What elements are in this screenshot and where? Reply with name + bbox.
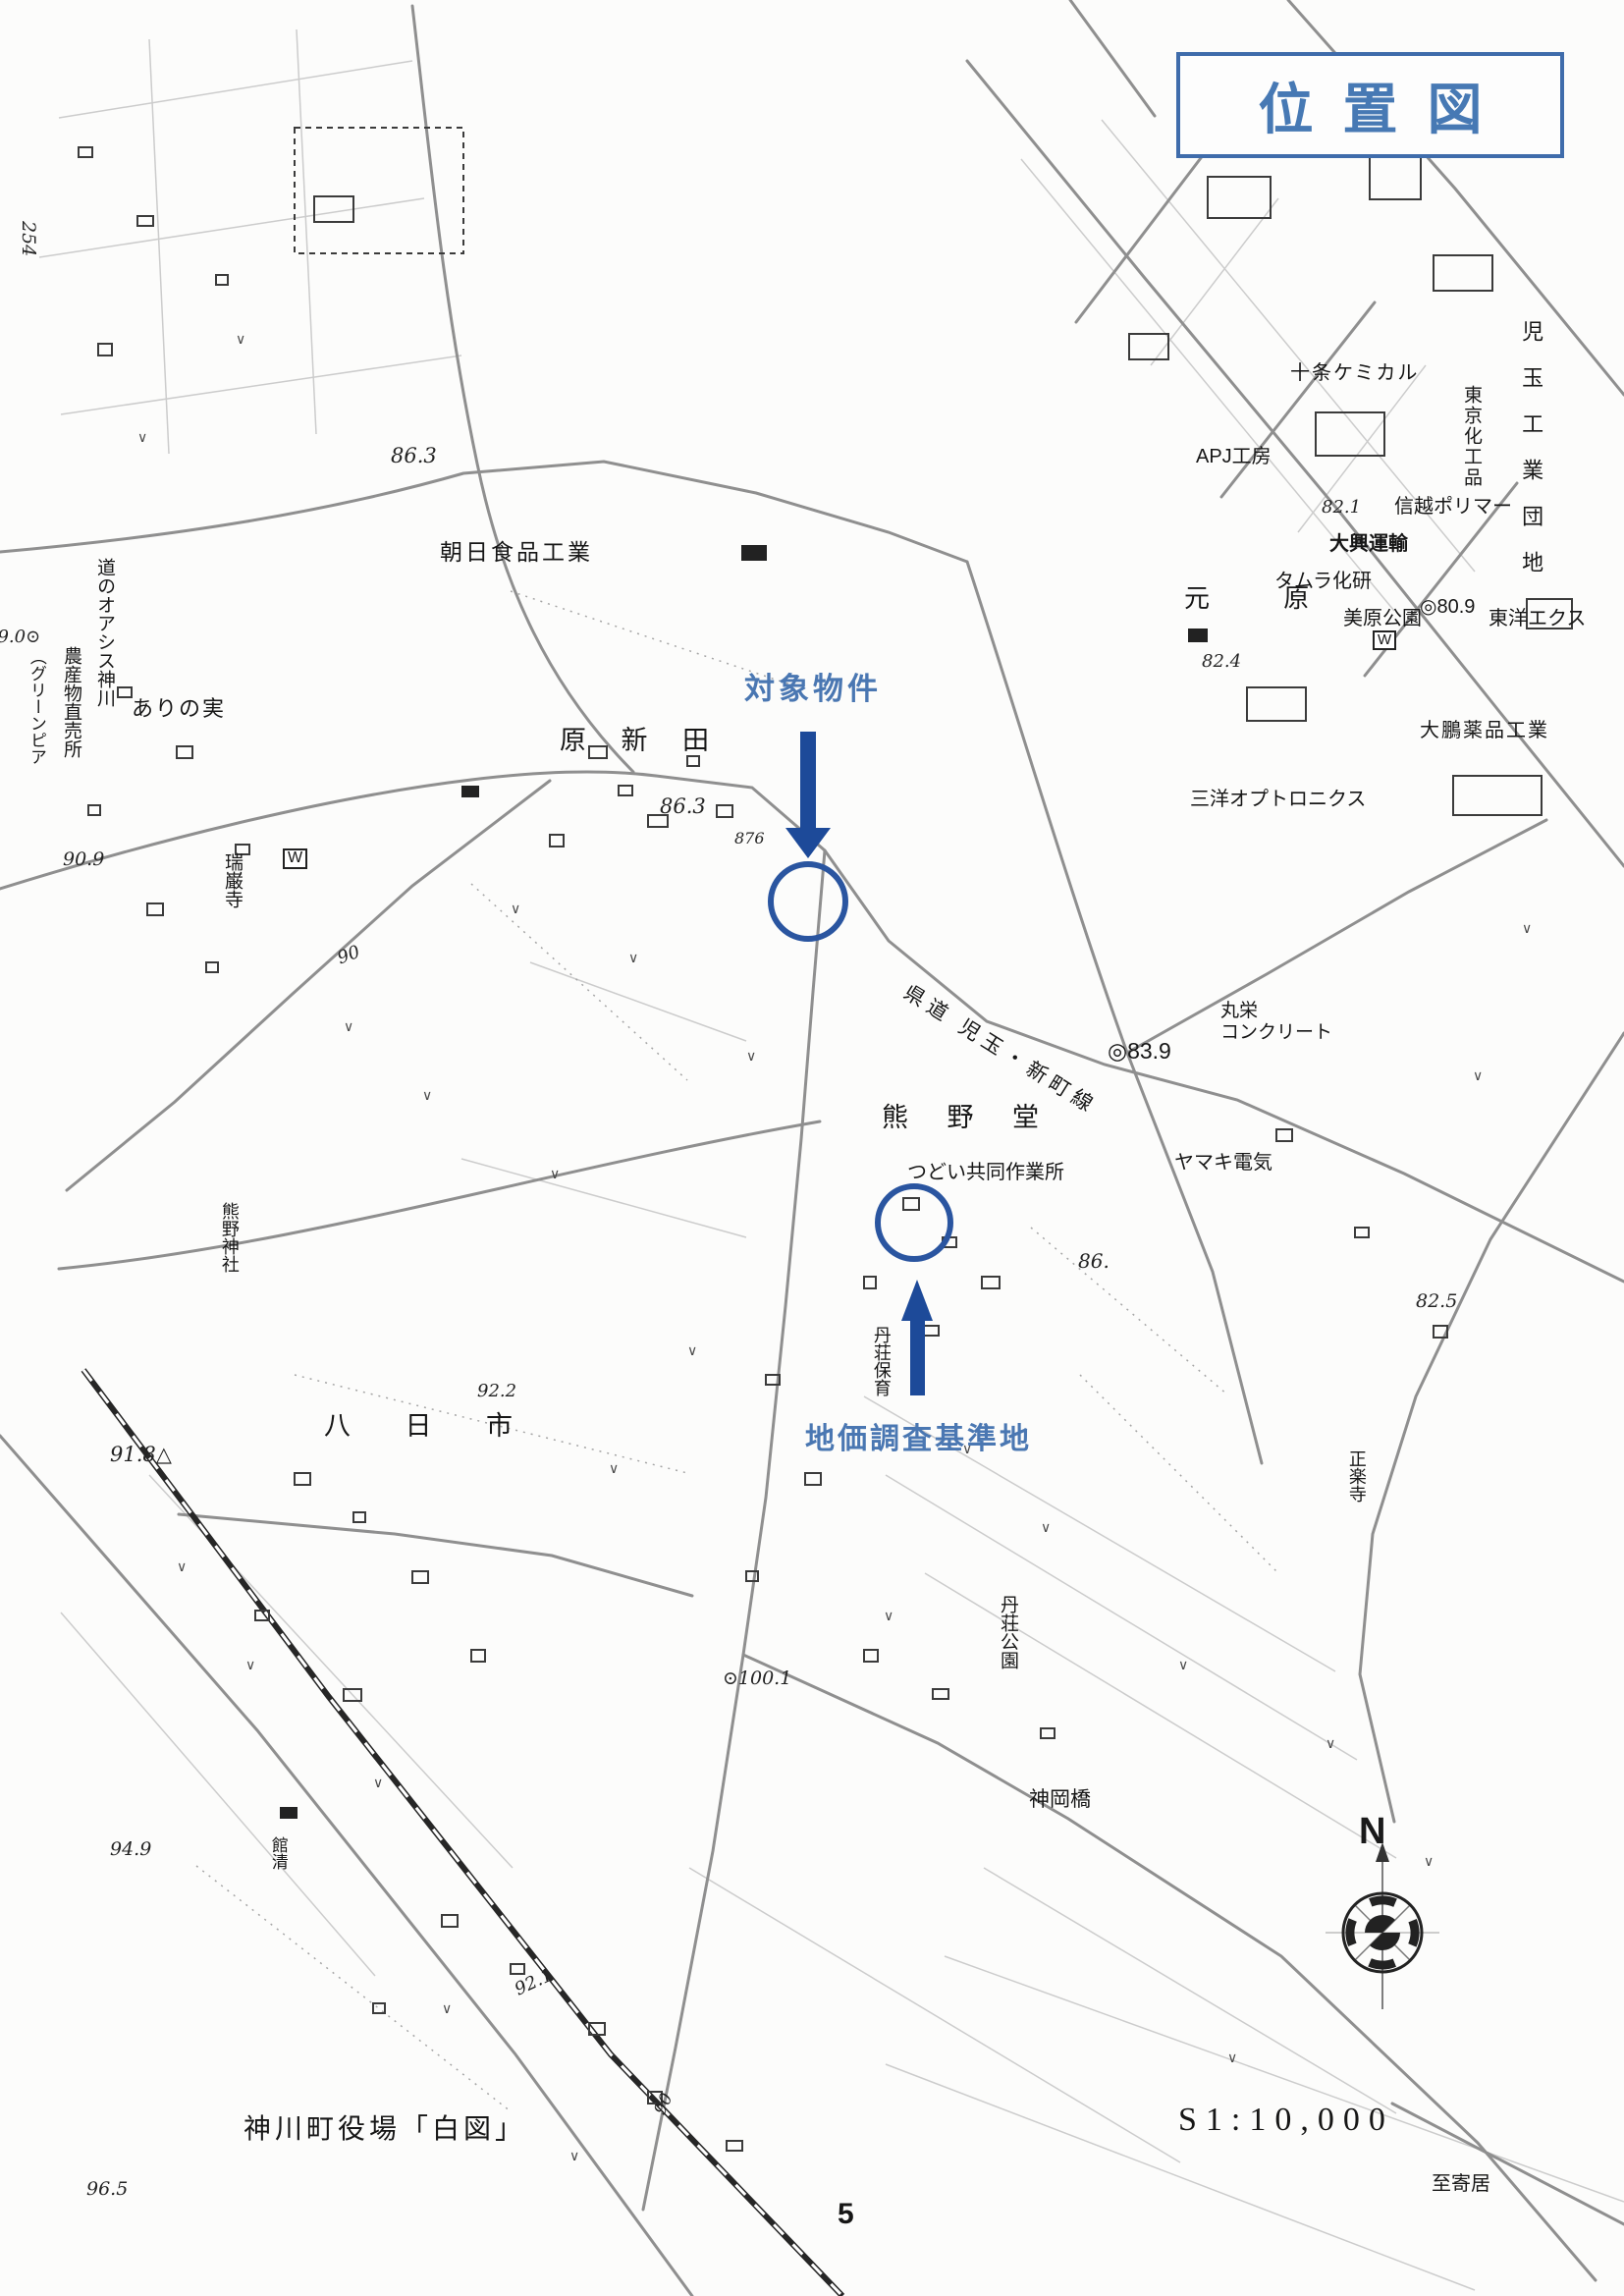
scale-label: S1:10,000	[1178, 2102, 1394, 2139]
benchmark-83-9: ◎83.9	[1108, 1039, 1171, 1063]
map-label-shorakuji: 正楽寺	[1347, 1449, 1366, 1503]
target-property-label: 対象物件	[744, 674, 882, 706]
map-label-tanso-koen: 丹荘公園	[998, 1595, 1017, 1669]
benchmark-89-0: 89.0⊙	[0, 629, 40, 647]
map-label-asahi-foods: 朝日食品工業	[440, 540, 593, 564]
elevation-86-3-nw: 86.3	[391, 445, 437, 466]
map-label-nousanbutsu: 農産物直売所	[61, 646, 81, 758]
elevation-90-9: 90.9	[63, 850, 104, 870]
elevation-86: 86.	[1078, 1251, 1110, 1272]
water-symbol-w2: W	[1373, 630, 1396, 650]
map-label-sanyo-opto: 三洋オプトロニクス	[1190, 790, 1366, 810]
elevation-876: 876	[734, 831, 765, 847]
map-label-yakata: 館清	[269, 1836, 287, 1870]
elevation-86-3-shinden: 86.3	[660, 795, 706, 817]
elevation-94-9: 94.9	[110, 1840, 151, 1860]
page-number: 5	[838, 2198, 854, 2231]
map-label-taiho-pharma: 大鵬薬品工業	[1420, 721, 1549, 741]
elevation-82-4: 82.4	[1202, 653, 1241, 672]
map-title-box: 位置図	[1176, 52, 1564, 158]
map-label-maruei-2: コンクリート	[1220, 1023, 1332, 1043]
survey-site-circle	[878, 1186, 950, 1259]
map-label-shinetsu-polymer: 信越ポリマー	[1394, 497, 1512, 518]
survey-site-arrow-up-icon	[901, 1280, 933, 1395]
map-label-michi-no-oasis: 道のオアシス神川	[94, 558, 114, 707]
map-label-yamaki-denki: ヤマキ電気	[1174, 1153, 1272, 1174]
map-title: 位置図	[1259, 66, 1512, 145]
map-label-arinomi: ありの実	[132, 697, 226, 720]
compass-north-label: N	[1359, 1811, 1385, 1853]
map-label-motohara: 元 原	[1184, 585, 1342, 612]
elevation-96-5: 96.5	[86, 2180, 128, 2200]
elevation-92-2: 92.2	[477, 1383, 516, 1401]
map-label-mihara-park: 美原公園	[1343, 609, 1422, 629]
benchmark-100-1: ⊙100.1	[723, 1669, 791, 1689]
target-property-arrow-down-icon	[785, 732, 831, 858]
map-label-jujo-chemical: 十条ケミカル	[1290, 363, 1419, 384]
map-label-toyo-ex: 東洋エクス	[1489, 609, 1586, 629]
location-map-page: ∨∨∨ ∨∨∨ ∨∨∨ ∨∨∨ ∨∨∨ ∨∨∨ ∨∨∨ ∨∨∨	[0, 0, 1624, 2296]
map-label-tsudoi: つどい共同作業所	[907, 1163, 1064, 1183]
map-label-yokaichi: 八 日 市	[324, 1412, 536, 1440]
elevation-82-1: 82.1	[1322, 499, 1361, 518]
map-label-maruei-1: 丸栄	[1220, 1002, 1258, 1021]
map-label-daiko-unyu: 大興運輸	[1329, 534, 1408, 555]
map-label-apj-kobo: APJ工房	[1196, 447, 1272, 467]
survey-site-label: 地価調査基準地	[805, 1424, 1032, 1455]
map-label-greenpia: （グリーンピア	[27, 648, 45, 765]
map-label-kumanodo: 熊 野 堂	[882, 1104, 1055, 1131]
direction-to-yorii: 至寄居	[1432, 2174, 1490, 2195]
map-label-zuiganji: 瑞巌寺	[222, 852, 242, 908]
water-symbol-w1: W	[283, 848, 307, 869]
benchmark-80-9: ◎80.9	[1420, 597, 1475, 618]
map-label-tokyo-kakohin: 東京化工品	[1461, 385, 1481, 488]
map-label-kumano-jinja: 熊野神社	[220, 1202, 239, 1273]
map-source-note: 神川町役場「白図」	[244, 2107, 526, 2147]
elevation-82-5: 82.5	[1416, 1292, 1457, 1312]
map-label-kamioka-bridge: 神岡橋	[1029, 1789, 1091, 1811]
map-label-tanso-hoiku: 丹荘保育	[872, 1326, 891, 1396]
map-label-kodama-danchi: 児玉工業団地	[1520, 320, 1543, 597]
elevation-91-8: 91.8△	[110, 1444, 172, 1465]
annotation-overlay	[0, 0, 1624, 2296]
elevation-254: 254	[18, 221, 37, 256]
map-label-hara-shinden: 原 新 田	[560, 727, 723, 754]
target-property-circle	[771, 864, 845, 939]
